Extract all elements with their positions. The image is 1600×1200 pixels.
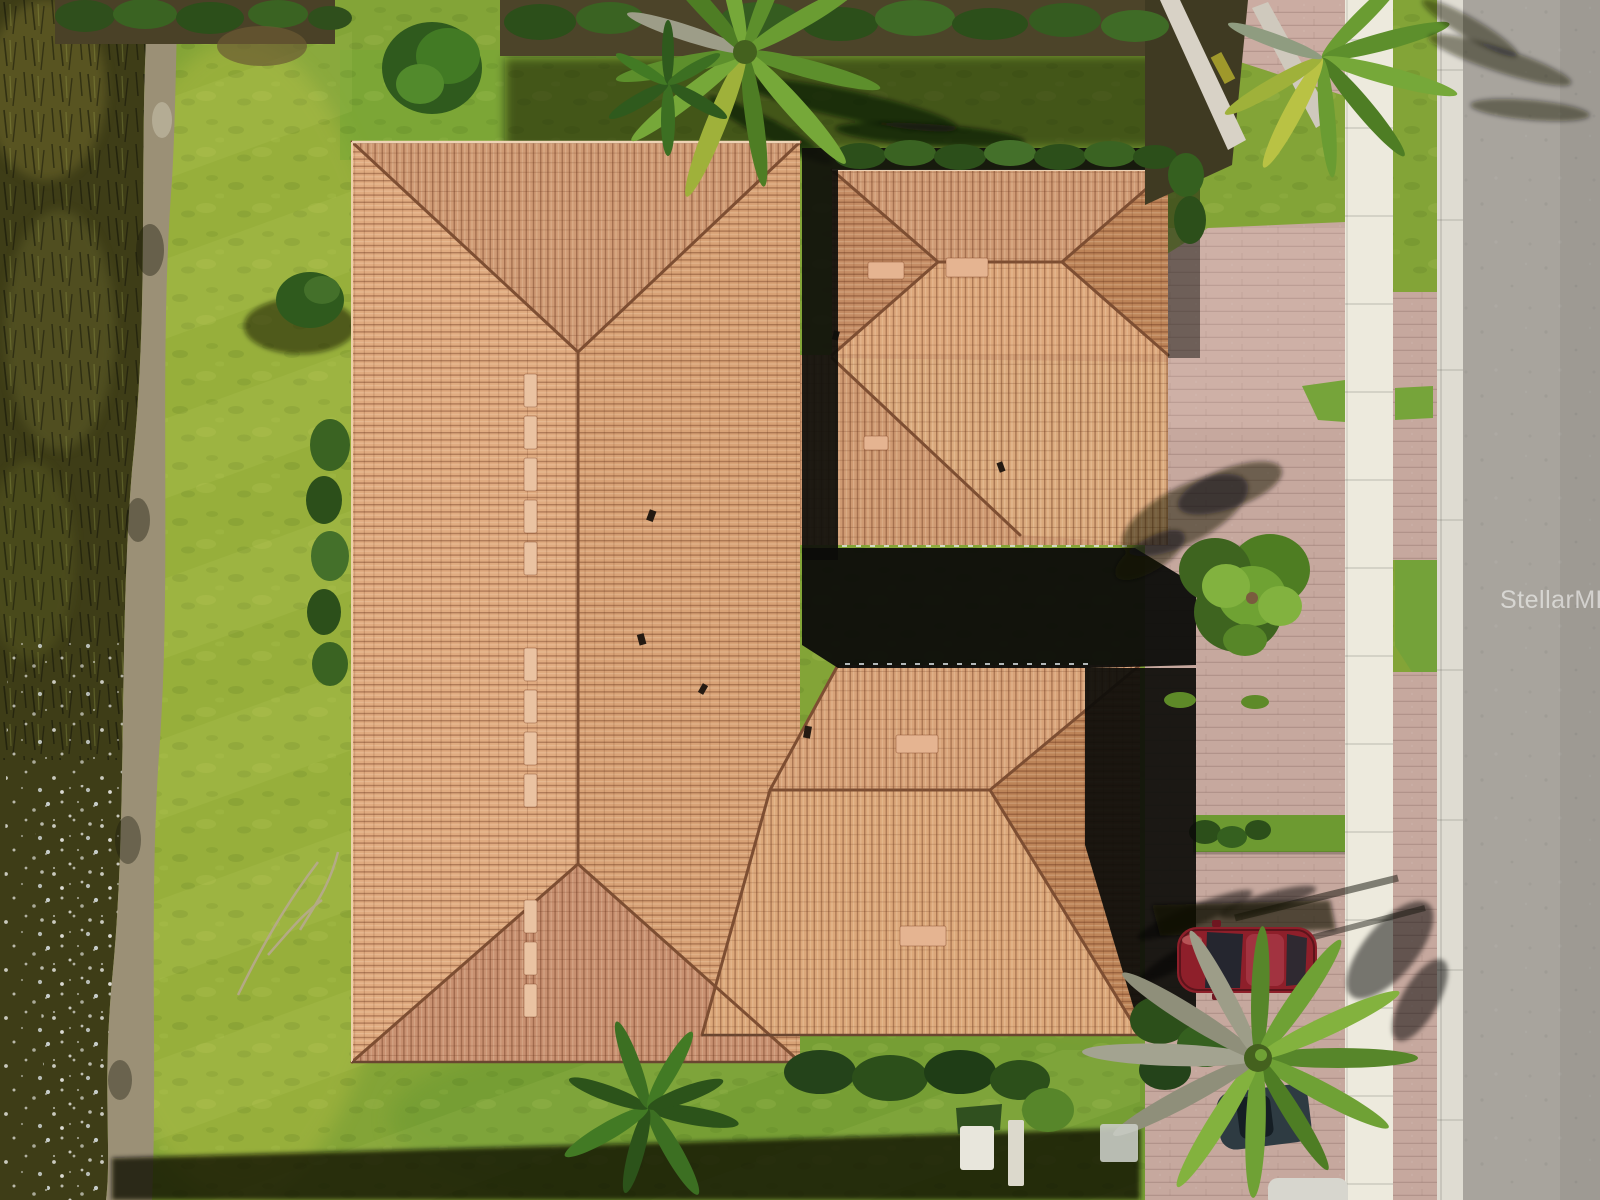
equipment-pad — [1100, 1124, 1138, 1162]
dirt-patch-top — [217, 26, 307, 66]
aerial-photo-canvas — [0, 0, 1600, 1200]
bank-spot-4 — [108, 1060, 132, 1100]
red-car-mirror-top — [1212, 920, 1221, 927]
tree-canopy-light-1 — [1202, 564, 1250, 608]
tree-canopy-light-2 — [1258, 586, 1302, 626]
white-vehicle-edge — [1268, 1178, 1348, 1200]
median-bush-3 — [1245, 820, 1271, 840]
roof-mid-east — [800, 355, 1168, 545]
utility-panel — [1008, 1120, 1024, 1186]
palm-top-crown — [733, 40, 757, 64]
bank-highlight — [152, 102, 172, 138]
driveway-cross-upper-tex — [1393, 292, 1437, 560]
grass-diamond-right — [1395, 386, 1433, 420]
palm-bottom-crown-highlight — [1255, 1049, 1267, 1061]
pond — [0, 0, 178, 1200]
stellar-mls-watermark: StellarMLS — [1500, 586, 1600, 615]
utility-box-body — [960, 1126, 994, 1170]
median-bush-2 — [1217, 826, 1247, 848]
bank-spot-2 — [126, 498, 150, 542]
tree-base-tuft-1 — [1164, 692, 1196, 708]
tree-base-tuft-2 — [1241, 695, 1269, 709]
tree-canopy-light-3 — [1223, 624, 1267, 656]
tree-topleft — [382, 22, 482, 114]
grass-wedge-mid — [1395, 560, 1437, 672]
bank-spot-3 — [115, 816, 141, 864]
aerial-photo: StellarMLS — [0, 0, 1600, 1200]
shrub-west-highlight — [304, 276, 340, 304]
tree-trunk-top — [1246, 592, 1258, 604]
bank-spot-1 — [136, 224, 164, 276]
